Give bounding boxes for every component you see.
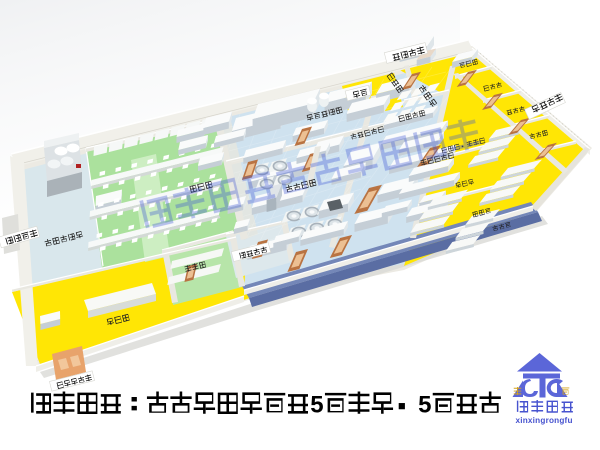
svg-text:5: 5 [310, 392, 323, 419]
svg-text:xinxingrongfu: xinxingrongfu [516, 416, 573, 425]
svg-text:5: 5 [418, 392, 431, 419]
